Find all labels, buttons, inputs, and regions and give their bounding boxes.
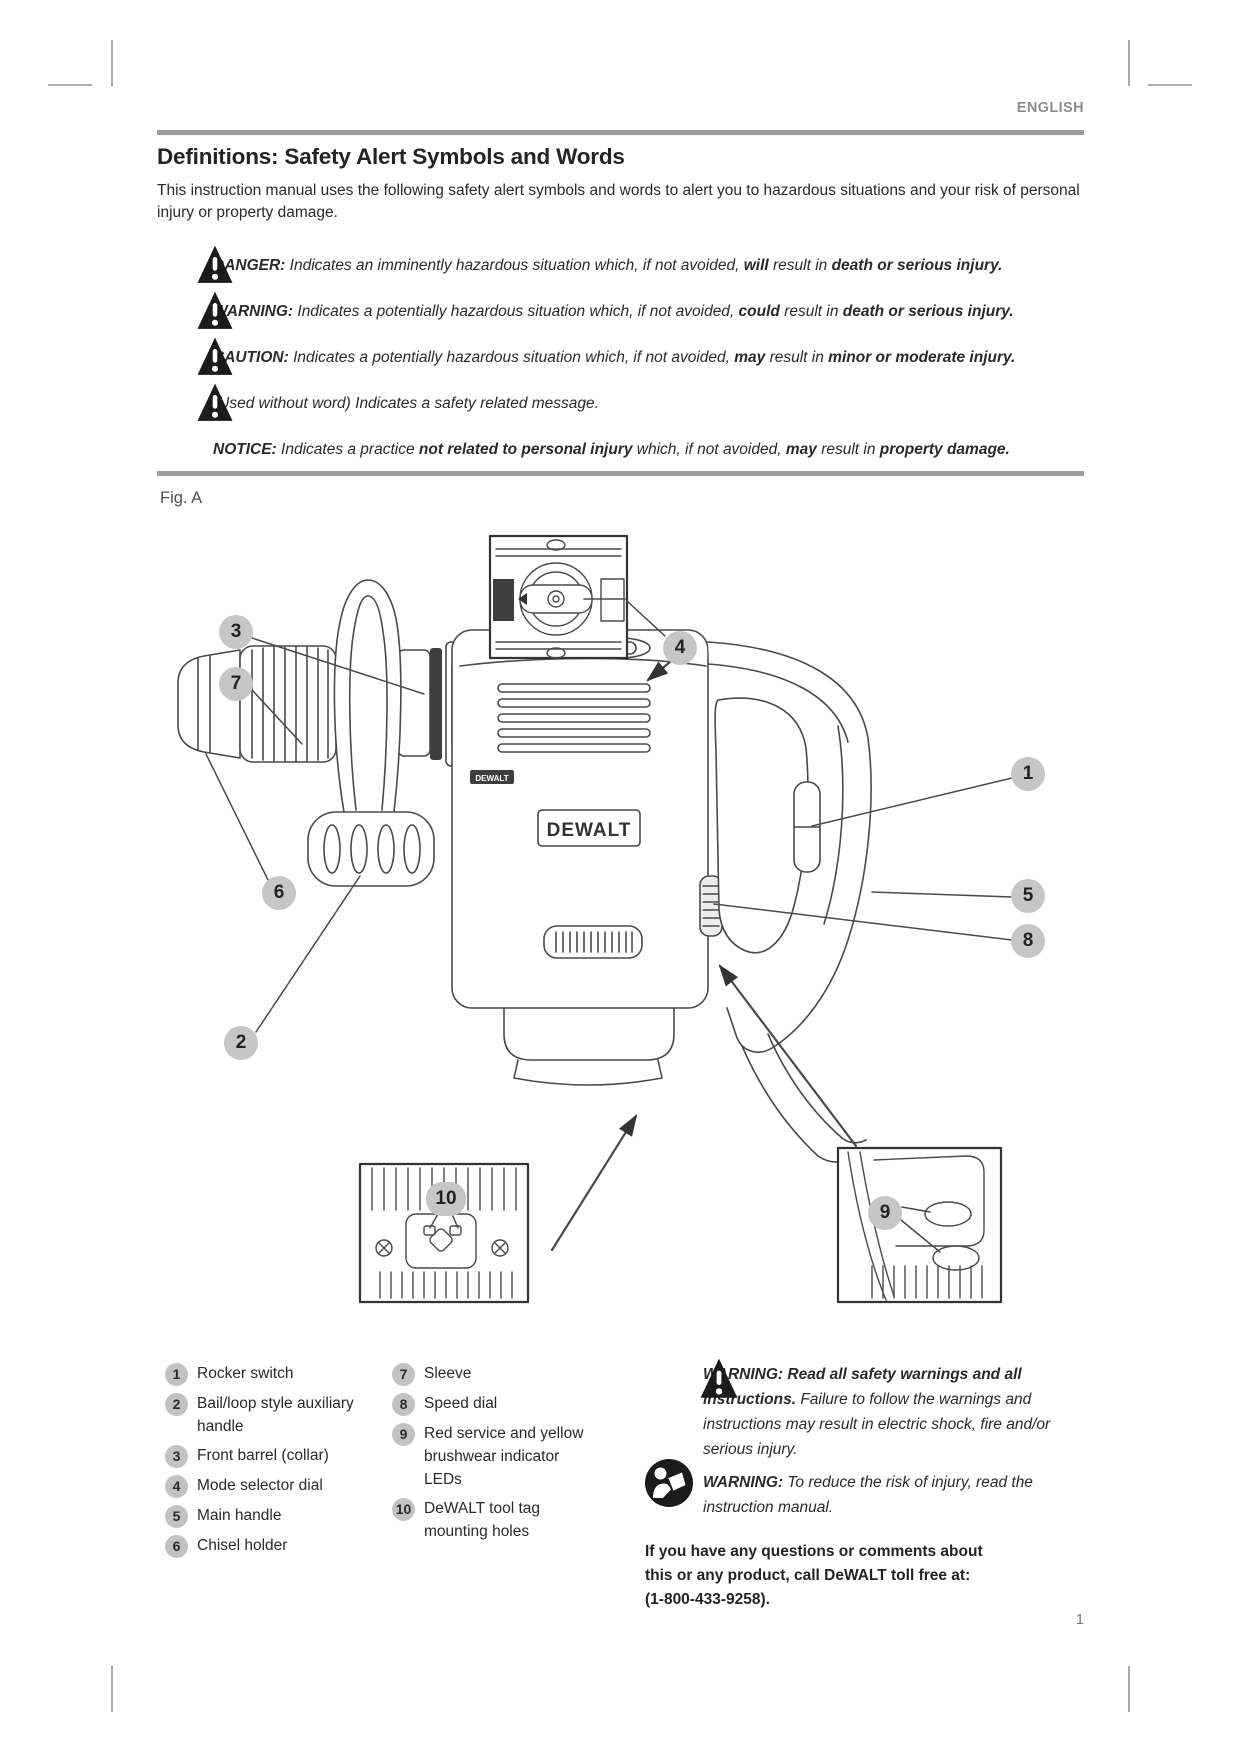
crop-mark — [1128, 1666, 1130, 1712]
legend-number: 8 — [392, 1393, 415, 1416]
legend-number: 7 — [392, 1363, 415, 1386]
figure-label: Fig. A — [160, 489, 202, 508]
callout-4: 4 — [663, 631, 697, 665]
legend-label: Chisel holder — [197, 1534, 287, 1558]
definition-text: (Used without word) Indicates a safety r… — [213, 395, 599, 412]
legend-item: 4 Mode selector dial — [165, 1474, 385, 1498]
section-intro: This instruction manual uses the followi… — [157, 180, 1084, 223]
legend-item: 9 Red service and yellow brushwear indic… — [392, 1422, 592, 1491]
legend-item: 7 Sleeve — [392, 1362, 592, 1386]
warning-triangle-icon — [196, 243, 234, 287]
callout-10: 10 — [426, 1182, 466, 1216]
legend-item: 6 Chisel holder — [165, 1534, 385, 1558]
legend-label: Red service and yellow brushwear indicat… — [424, 1422, 592, 1491]
warning-triangle-icon — [196, 289, 234, 333]
contact-line: (1-800-433-9258). — [645, 1588, 983, 1612]
chisel-holder — [178, 650, 240, 758]
legend-item: 8 Speed dial — [392, 1392, 592, 1416]
svg-text:DEWALT: DEWALT — [547, 820, 632, 841]
legend-number: 10 — [392, 1498, 415, 1521]
page-number: 1 — [157, 1612, 1084, 1628]
figure-divider — [157, 471, 1084, 476]
rocker-switch — [794, 782, 820, 872]
legend-item: 10 DeWALT tool tag mounting holes — [392, 1497, 592, 1543]
callout-9: 9 — [868, 1196, 902, 1230]
warning-triangle-icon — [196, 335, 234, 379]
figure-a-drawing: DEWALT DEWALT — [150, 512, 1020, 1312]
serial-label — [544, 926, 642, 958]
definition-notice: NOTICE: Indicates a practice not related… — [157, 440, 1084, 460]
contact-line: this or any product, call DeWALT toll fr… — [645, 1564, 983, 1588]
definition-caution: CAUTION: Indicates a potentially hazardo… — [157, 348, 1084, 368]
language-label: ENGLISH — [157, 100, 1084, 116]
contact-line: If you have any questions or comments ab… — [645, 1540, 983, 1564]
legend-number: 3 — [165, 1445, 188, 1468]
legend-number: 1 — [165, 1363, 188, 1386]
definition-text: DANGER: Indicates an imminently hazardou… — [213, 257, 1002, 274]
section-title: Definitions: Safety Alert Symbols and Wo… — [157, 144, 625, 170]
manual-page: ENGLISH Definitions: Safety Alert Symbol… — [0, 0, 1241, 1754]
legend-item: 3 Front barrel (collar) — [165, 1444, 385, 1468]
warning-triangle-icon — [699, 1356, 739, 1402]
callout-8: 8 — [1011, 924, 1045, 958]
read-manual-icon — [644, 1458, 694, 1508]
definition-text: NOTICE: Indicates a practice not related… — [213, 441, 1010, 458]
warning-triangle-icon — [196, 381, 234, 425]
definition-text: CAUTION: Indicates a potentially hazardo… — [213, 349, 1015, 366]
power-cord — [742, 1034, 866, 1162]
legend-label: Main handle — [197, 1504, 281, 1528]
legend-label: Rocker switch — [197, 1362, 293, 1386]
definition-safety-message: (Used without word) Indicates a safety r… — [157, 394, 1084, 414]
sleeve — [240, 646, 336, 762]
callout-7: 7 — [219, 667, 253, 701]
definition-text: WARNING: Indicates a potentially hazardo… — [213, 303, 1014, 320]
legend-column-1: 1 Rocker switch 2 Bail/loop style auxili… — [165, 1362, 385, 1564]
legend-item: 1 Rocker switch — [165, 1362, 385, 1386]
dewalt-logo: DEWALT — [538, 810, 640, 846]
main-body: DEWALT DEWALT — [452, 630, 722, 1085]
legend-number: 2 — [165, 1393, 188, 1416]
callout-1: 1 — [1011, 757, 1045, 791]
indicator-inset — [838, 1148, 1001, 1302]
mode-dial-inset — [490, 536, 627, 658]
callout-5: 5 — [1011, 879, 1045, 913]
crop-mark — [111, 40, 113, 86]
legend-label: Front barrel (collar) — [197, 1444, 329, 1468]
definition-danger: DANGER: Indicates an imminently hazardou… — [157, 256, 1084, 276]
legend-label: Speed dial — [424, 1392, 497, 1416]
crop-mark — [1148, 84, 1192, 86]
callout-3: 3 — [219, 615, 253, 649]
rear-handle — [708, 642, 871, 1162]
legend-number: 5 — [165, 1505, 188, 1528]
callout-6: 6 — [262, 876, 296, 910]
dewalt-body-badge: DEWALT — [470, 770, 514, 784]
svg-text:DEWALT: DEWALT — [475, 774, 508, 783]
legend-number: 6 — [165, 1535, 188, 1558]
legend-label: Bail/loop style auxiliary handle — [197, 1392, 385, 1438]
crop-mark — [1128, 40, 1130, 86]
reduce-risk-warning-text: WARNING: To reduce the risk of injury, r… — [703, 1470, 1085, 1520]
crop-mark — [48, 84, 92, 86]
legend-label: Sleeve — [424, 1362, 471, 1386]
legend-label: Mode selector dial — [197, 1474, 323, 1498]
definition-warning: WARNING: Indicates a potentially hazardo… — [157, 302, 1084, 322]
legend-number: 4 — [165, 1475, 188, 1498]
crop-mark — [111, 1666, 113, 1712]
legend-column-2: 7 Sleeve 8 Speed dial 9 Red service and … — [392, 1362, 592, 1549]
legend-label: DeWALT tool tag mounting holes — [424, 1497, 592, 1543]
legend-item: 5 Main handle — [165, 1504, 385, 1528]
legend-number: 9 — [392, 1423, 415, 1446]
read-warnings-text: WARNING: Read all safety warnings and al… — [703, 1362, 1085, 1462]
callout-2: 2 — [224, 1026, 258, 1060]
section-divider — [157, 130, 1084, 135]
legend-item: 2 Bail/loop style auxiliary handle — [165, 1392, 385, 1438]
contact-info: If you have any questions or comments ab… — [645, 1540, 983, 1612]
